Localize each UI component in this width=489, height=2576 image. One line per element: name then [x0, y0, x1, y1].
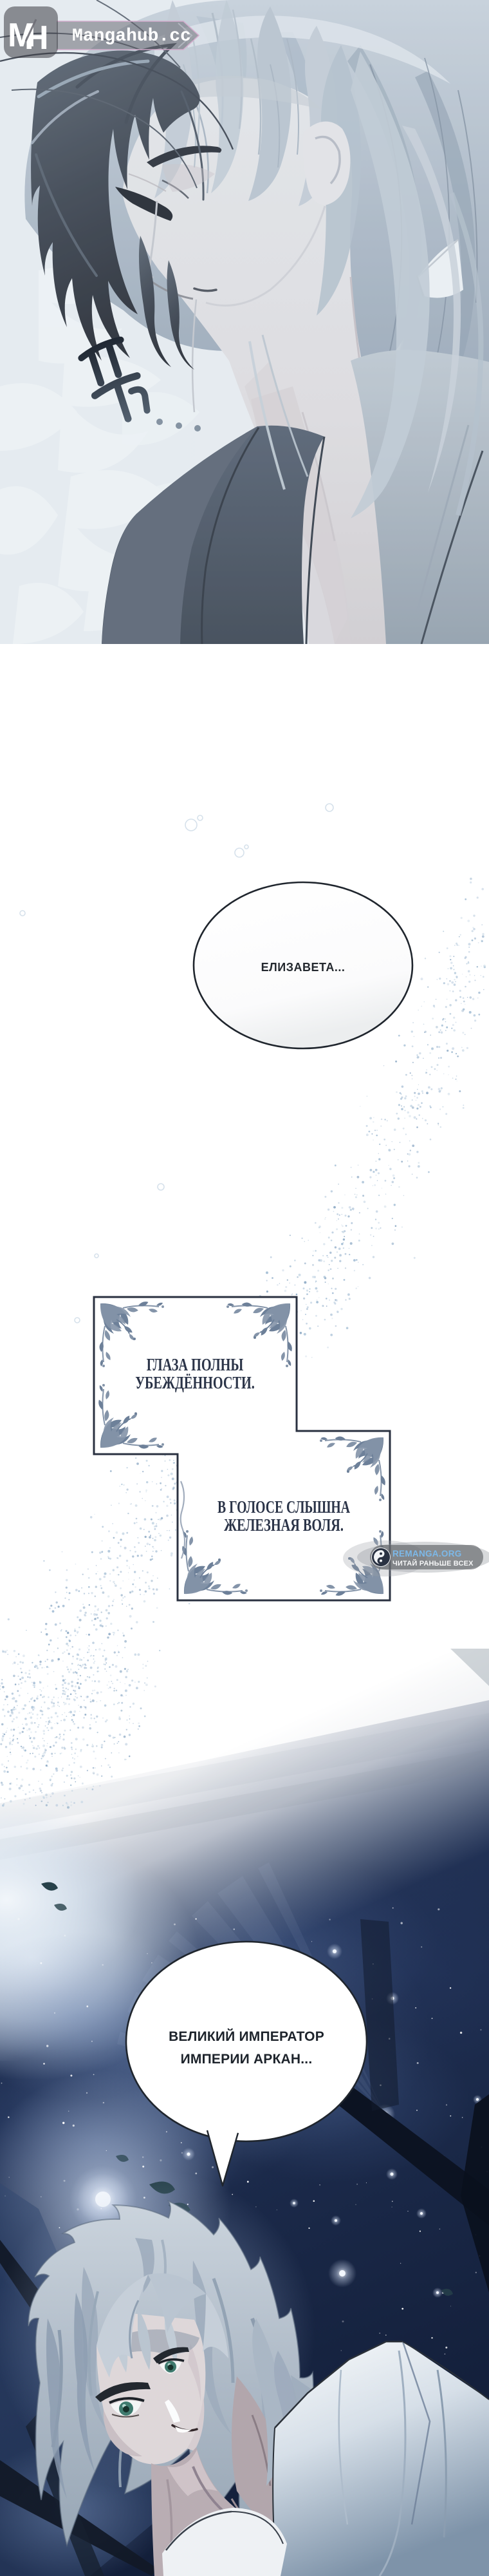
- svg-text:ГЛАЗА ПОЛНЫ: ГЛАЗА ПОЛНЫ: [147, 1356, 244, 1374]
- svg-text:В ГОЛОСЕ СЛЫШНА: В ГОЛОСЕ СЛЫШНА: [217, 1498, 350, 1517]
- svg-text:REMANGA.ORG: REMANGA.ORG: [392, 1549, 462, 1558]
- svg-text:ЖЕЛЕЗНАЯ ВОЛЯ.: ЖЕЛЕЗНАЯ ВОЛЯ.: [224, 1516, 344, 1535]
- svg-text:УБЕЖДЁННОСТИ.: УБЕЖДЁННОСТИ.: [135, 1374, 255, 1392]
- svg-text:ЧИТАЙ РАНЬШЕ ВСЕХ: ЧИТАЙ РАНЬШЕ ВСЕХ: [392, 1559, 474, 1567]
- svg-text:ИМПЕРИИ АРКАН...: ИМПЕРИИ АРКАН...: [181, 2052, 313, 2067]
- svg-text:ЕЛИЗАВЕТА...: ЕЛИЗАВЕТА...: [261, 961, 346, 974]
- svg-text:Mangahub.cc: Mangahub.cc: [72, 26, 191, 46]
- svg-text:ВЕЛИКИЙ ИМПЕРАТОР: ВЕЛИКИЙ ИМПЕРАТОР: [169, 2029, 324, 2044]
